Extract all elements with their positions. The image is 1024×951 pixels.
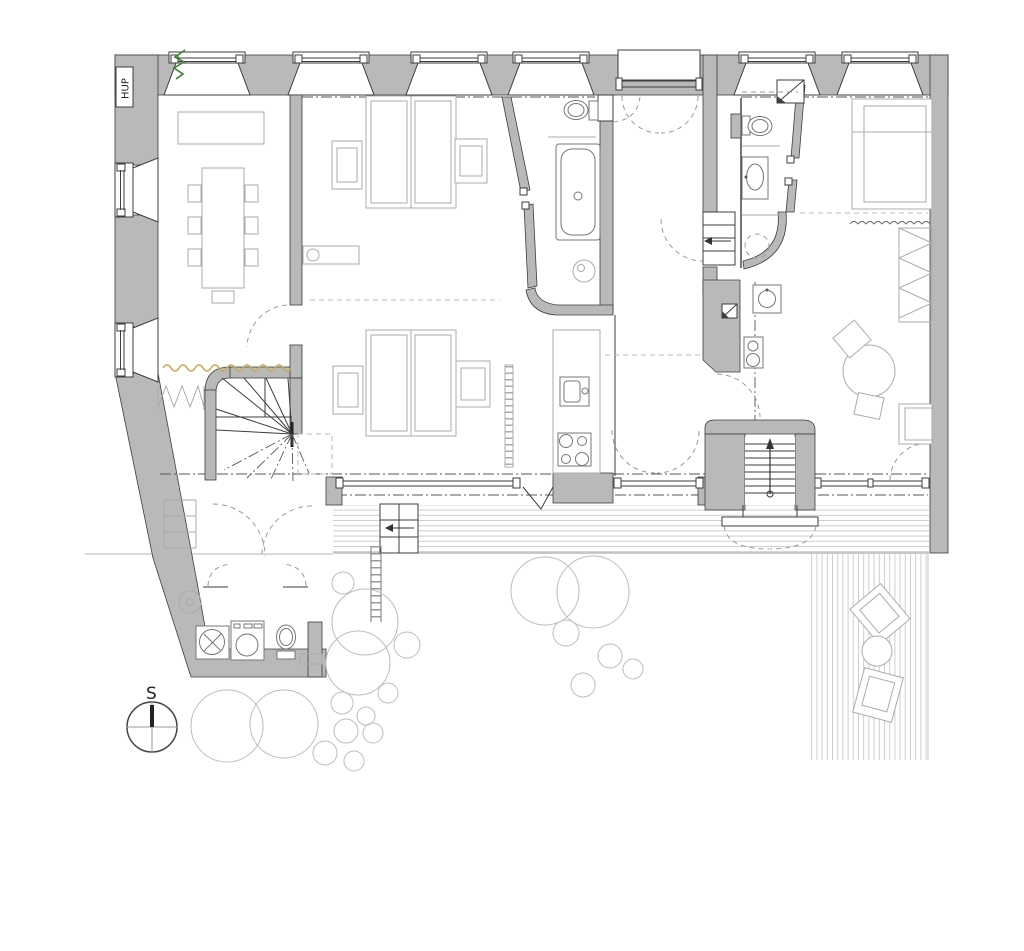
sideboard: [178, 112, 264, 144]
dining-chair: [245, 217, 258, 234]
south-glazing: [336, 478, 929, 509]
shower-icon: [745, 234, 769, 258]
east-bedroom: [833, 99, 932, 444]
dining-room: [178, 112, 264, 303]
compass: S: [126, 684, 178, 753]
two-burner-stove-icon: [744, 337, 763, 368]
bathroom1-door: [598, 95, 613, 121]
window-left-2: [115, 318, 158, 382]
corridor-east-wall: [703, 55, 717, 212]
washbasin-icon: [573, 260, 595, 282]
east-wall: [930, 55, 948, 553]
floor-plan-drawing: HUP S: [0, 0, 1024, 951]
dining-door-arc: [247, 305, 287, 347]
kitchenette-door-arc: [717, 374, 760, 417]
compass-north-label: S: [146, 684, 157, 704]
dining-table: [202, 168, 244, 288]
dining-east-wall: [290, 95, 302, 305]
door-swing-arc: [622, 96, 659, 133]
dining-chair: [188, 217, 201, 234]
south-wall-center-block: [553, 473, 613, 503]
dining-chair: [245, 249, 258, 266]
window-top-2: [288, 52, 374, 95]
light-well: [618, 50, 700, 80]
garden-gate-fence: [371, 546, 381, 622]
bathroom1-east-wall: [600, 121, 613, 313]
terrace-stair-landing: [722, 517, 818, 526]
dining-chair: [245, 185, 258, 202]
entry-steps: [703, 212, 735, 265]
window-top-4: [508, 52, 594, 95]
terrace-steps-west: [380, 504, 418, 553]
dining-chair: [212, 291, 234, 303]
floor-plan-page: HUP S: [0, 0, 1024, 951]
ceiling-beam-dashed: [298, 434, 332, 474]
window-top-6: [837, 52, 923, 95]
utility-east-wall: [308, 622, 322, 677]
kitchenette-wall-block: [703, 280, 740, 372]
bathroom-1: [548, 101, 600, 283]
gas-meter-label: HUP: [121, 78, 132, 99]
entry-door-arc: [661, 219, 703, 261]
west-wall-mid: [115, 215, 158, 327]
curtain-wavy-line: [850, 222, 930, 225]
kitchen: [553, 330, 600, 473]
dining-chair: [188, 249, 201, 266]
bathroom2-curved-wall: [743, 212, 786, 269]
window-top-3: [406, 52, 492, 95]
bathroom1-angled-wall: [502, 97, 530, 192]
dining-chair: [188, 185, 201, 202]
daybed: [899, 404, 932, 444]
window-left-1: [115, 158, 158, 222]
bedroom-1: [303, 96, 487, 264]
dryer-icon: [231, 621, 264, 660]
door-swing-arc: [661, 96, 698, 133]
gas-meter: HUP: [116, 67, 133, 107]
deck-horizontal-boards: [333, 505, 929, 553]
stair-west-wall: [205, 390, 216, 480]
bedroom-2: [310, 300, 513, 467]
coat-rack-icon: [158, 386, 204, 407]
chair: [854, 393, 884, 420]
deck-table: [862, 636, 892, 666]
